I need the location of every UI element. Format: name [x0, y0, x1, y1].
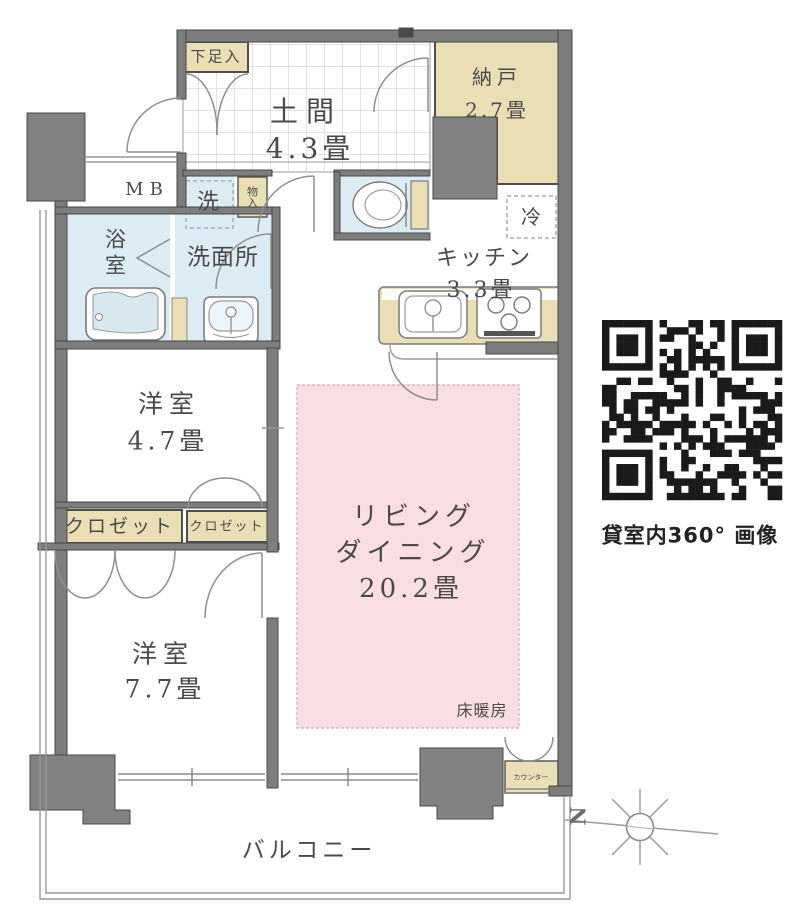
pillar-bottom-middle: [420, 748, 503, 819]
bedroom2-door-arc: [205, 553, 262, 618]
doma-size-label: 4.3畳: [266, 135, 355, 163]
living-dining-label-1: リビング: [352, 504, 476, 530]
wall-washroom-top: [55, 207, 280, 214]
washroom-label: 洗面所: [187, 247, 259, 270]
living-dining-size-label: 20.2畳: [359, 576, 463, 602]
bathroom-label: 浴室: [104, 228, 125, 280]
washroom-sink-icon: [204, 297, 258, 343]
wall-bedroom-ld-upper: [267, 348, 278, 552]
wall-toilet-top: [334, 170, 430, 176]
compass-icon: [565, 789, 718, 865]
closet-right-label: クロゼット: [189, 521, 264, 534]
counter-label: カウンター: [514, 775, 549, 782]
pillar-top-left: [27, 113, 85, 201]
closet-left-doors: [55, 550, 175, 598]
wall-top: [177, 30, 570, 42]
wall-closet-top: [55, 502, 269, 508]
living-dining-label-2: ダイニング: [335, 540, 490, 566]
pillar-bottom-left: [30, 755, 130, 824]
shoe-cabinet-label: 下足入: [190, 50, 241, 65]
wall-doma-bottom: [183, 170, 272, 176]
kitchen-size-label: 3.3畳: [447, 280, 516, 302]
compass-north-label: N: [568, 806, 589, 825]
wall-kitchen-stub: [486, 342, 558, 354]
bedroom1-size-label: 4.7畳: [128, 429, 209, 454]
bedroom2-size-label: 7.7畳: [125, 677, 206, 702]
wall-washroom-bottom: [55, 341, 280, 349]
wall-top-tab: [399, 28, 413, 37]
nando-label: 納戸: [472, 67, 522, 87]
wall-toilet-left: [334, 172, 340, 239]
storage-label: 物入: [247, 186, 258, 208]
qr-code: [602, 320, 782, 500]
wall-entry-lower: [177, 153, 186, 213]
wall-left: [55, 198, 67, 755]
pillar-top-right: [433, 117, 497, 199]
wall-corner-br: [549, 786, 572, 796]
laundry-label: 洗: [197, 192, 219, 214]
nando-size-label: 2.7畳: [465, 100, 529, 120]
doma-label: 土間: [270, 98, 342, 126]
toilet-icon: [353, 181, 428, 229]
floorplan-page: 下足入 土間 4.3畳 納戸 2.7畳 MB 洗 物入 浴室 洗面所 冷 キッチ…: [0, 0, 803, 920]
wall-washroom-right: [272, 207, 280, 348]
bedroom2-label: 洋室: [132, 642, 194, 667]
balcony-label: バルコニー: [242, 840, 377, 863]
wall-right: [558, 30, 572, 788]
meter-box-label: MB: [125, 181, 169, 199]
wall-closet-bottom: [38, 543, 279, 550]
wall-entry-upper: [177, 30, 186, 99]
qr-caption: 貸室内360° 画像: [602, 526, 779, 547]
wall-bedroom-ld-lower: [267, 618, 278, 788]
bathtub-icon: [86, 288, 165, 340]
floorplan-drawing: [0, 0, 803, 920]
kitchen-label: キッチン: [436, 248, 532, 270]
wall-toilet-bottom: [334, 233, 430, 240]
bedroom1-label: 洋室: [138, 392, 200, 417]
refrigerator-label: 冷: [521, 207, 541, 227]
closet-left-label: クロゼット: [65, 518, 175, 537]
bath-divider: [172, 298, 187, 345]
entry-door-arc: [127, 98, 181, 152]
floor-heating-label: 床暖房: [456, 703, 507, 719]
counter-doors: [505, 737, 553, 761]
